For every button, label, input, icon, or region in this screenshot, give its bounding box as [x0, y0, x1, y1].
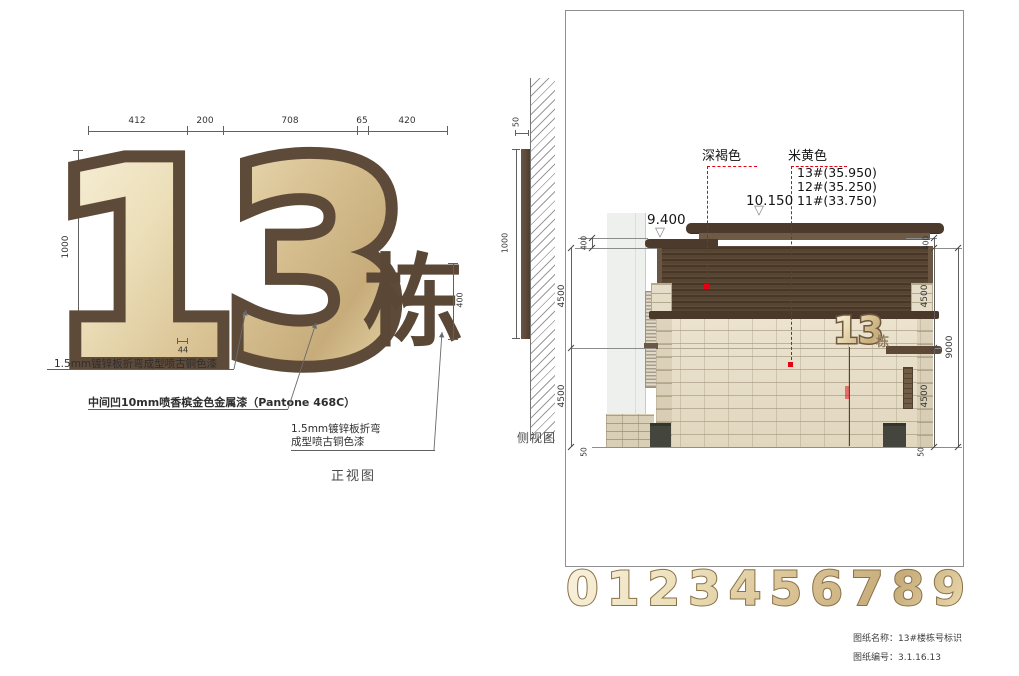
front-view-caption: 正视图	[331, 465, 376, 484]
dim-tick	[447, 126, 448, 135]
dim-tick	[187, 338, 188, 344]
extension-line	[571, 348, 656, 349]
cornice	[649, 311, 939, 319]
annotation-face: 中间凹10mm喷香槟金色金属漆（Pantone 468C）	[88, 394, 355, 410]
stone-quoin-left	[651, 283, 672, 312]
extension-line	[578, 238, 648, 239]
wall-sign-dong: 栋	[876, 331, 889, 350]
ground-line	[592, 447, 952, 448]
drawing-sheet: 412 200 708 65 420 1000 13 13 栋 400 44 1…	[0, 0, 1019, 676]
dim-tick	[448, 339, 458, 340]
pavement	[606, 414, 654, 448]
digits-face: 0123456789	[566, 566, 973, 613]
dim-tick	[448, 263, 458, 264]
annotation-underline	[88, 409, 288, 410]
level-13: 13#(35.950)	[797, 166, 877, 180]
dim-4500-right-lower: 4500	[920, 385, 930, 408]
building-edge-line	[635, 213, 636, 415]
level-marker-icon: ▽	[655, 226, 665, 239]
right-overall-dim-line	[958, 248, 959, 447]
side-view-sign-bar	[521, 149, 530, 339]
dim-400: 400	[456, 292, 465, 307]
dim-4500-left-upper: 4500	[557, 285, 567, 308]
base-pillar-left	[650, 423, 671, 448]
drawing-name: 图纸名称：13#楼栋号标识	[853, 631, 1013, 644]
dim-400-right: 400	[922, 236, 931, 250]
dim-tick	[528, 130, 529, 136]
background-building	[607, 213, 646, 415]
dark-brown-callout-line	[707, 166, 708, 288]
sign-height-red-label	[845, 386, 849, 399]
dim-50-right: 50	[917, 447, 926, 457]
drawing-number: 图纸编号：3.1.16.13	[853, 650, 1013, 663]
front-sign-dong: 栋	[363, 253, 463, 353]
side-height-dim-line	[516, 149, 517, 339]
beige-callout-dot	[788, 362, 793, 367]
wall-sign-numerals: 13 13	[833, 312, 881, 460]
level-list: 13#(35.950) 12#(35.250) 11#(33.750)	[797, 166, 877, 208]
dim-side-1000: 1000	[501, 233, 510, 253]
dim-44: 44	[178, 346, 188, 355]
annotation-underline	[291, 450, 435, 451]
extension-line	[933, 447, 962, 448]
dim-tick	[512, 149, 520, 150]
roof-fascia	[699, 233, 930, 240]
wall-hatch-pattern	[530, 78, 555, 441]
dim-50-line	[515, 133, 529, 134]
level-9400: 9.400	[647, 212, 686, 228]
dark-brown-callout-dot	[704, 284, 709, 289]
dim-400-left-line	[592, 238, 593, 248]
dim-50-left: 50	[580, 447, 589, 457]
dark-brown-callout-line	[707, 166, 757, 167]
wall-bracket-detail	[903, 367, 913, 409]
sign-height-red-line	[849, 347, 850, 446]
dim-4500-right-upper: 4500	[920, 285, 930, 308]
wall-line	[530, 78, 531, 441]
dim-400-left: 400	[580, 236, 589, 250]
dim-tick	[515, 130, 516, 136]
dim-tick	[512, 338, 520, 339]
annotation-outline-bottom: 1.5mm镀锌板折弯 成型喷古铜色漆	[291, 423, 381, 449]
level-marker-icon: ▽	[754, 204, 764, 217]
roof-slab	[686, 223, 944, 233]
dong-height-dim-line	[453, 263, 454, 340]
annotation-line1: 1.5mm镀锌板折弯	[291, 423, 381, 436]
level-11: 11#(33.750)	[797, 194, 877, 208]
annotation-line2: 成型喷古铜色漆	[291, 436, 381, 449]
dim-9000-right: 9000	[945, 336, 955, 359]
side-view-caption: 侧视图	[517, 429, 556, 446]
dim-tick	[177, 338, 178, 344]
dim-depth-50: 50	[512, 117, 521, 127]
left-dim-line	[571, 248, 572, 447]
annotation-underline	[47, 369, 234, 370]
wood-cladding-band	[657, 246, 933, 312]
level-12: 12#(35.250)	[797, 180, 877, 194]
right-dim-line	[934, 238, 935, 447]
digit-reference-row: 0123456789 0123456789	[566, 566, 663, 676]
dim-4500-left-lower: 4500	[557, 385, 567, 408]
base-pillar-right	[883, 423, 906, 448]
label-beige: 米黄色	[788, 145, 827, 164]
label-dark-brown: 深褐色	[702, 145, 741, 164]
